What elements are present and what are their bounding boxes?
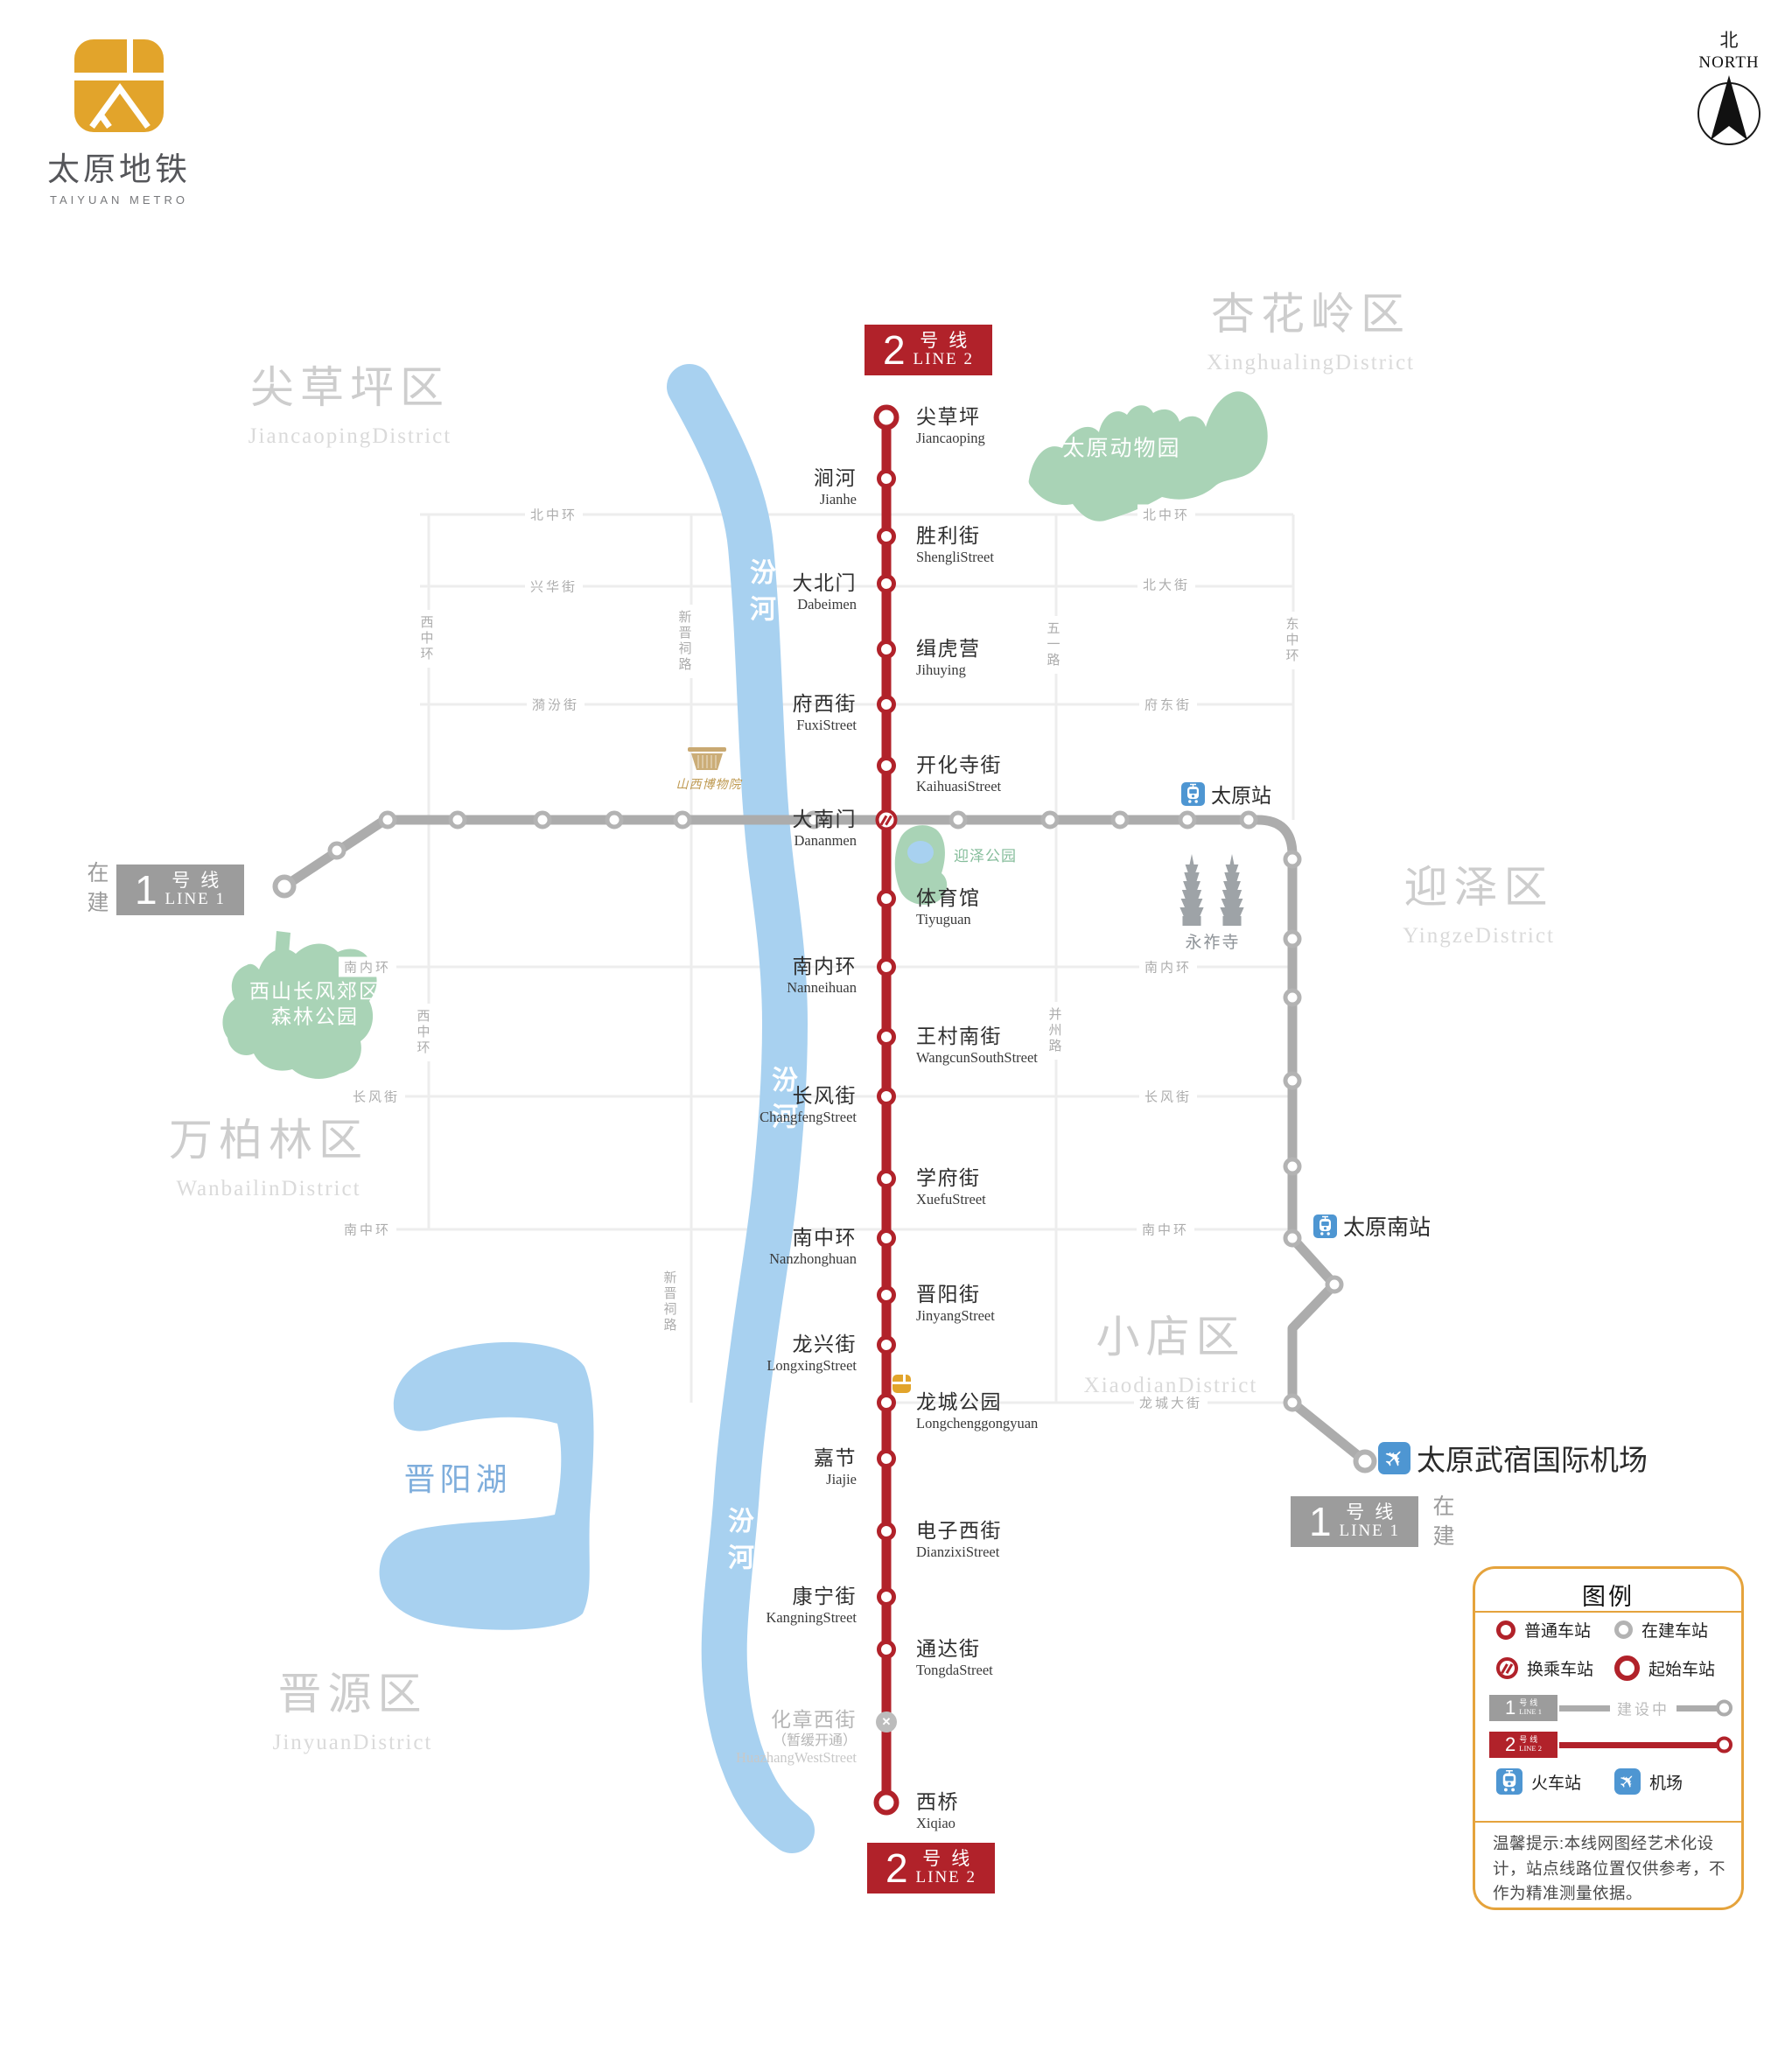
station-name-en: Nanneihuan [787,979,857,997]
station-marker-line1 [674,811,692,829]
app-logo: 太原地铁 TAIYUAN METRO [26,39,212,206]
station-marker-line1 [1284,1394,1302,1412]
station-name-zh: 尖草坪 [916,405,985,430]
station-name-zh: 嘉节 [814,1446,857,1471]
poi-label: 太原武宿国际机场 [1417,1437,1648,1479]
poi-label: 太原南站 [1343,1210,1431,1242]
district-label: 晋源区JinyuanDistrict [273,1659,433,1755]
line2-number: 2 [883,330,906,370]
station-name-en: Jianhe [814,491,857,508]
station-label: 体育馆Tiyuguan [916,886,981,927]
station-label: 龙兴街LongxingStreet [766,1333,857,1374]
north-arrow-icon [1687,75,1771,149]
station-label: 王村南街WangcunSouthStreet [916,1025,1038,1066]
station-name-en: HuazhangWestStreet [736,1749,857,1767]
station-label: 长风街ChangfengStreet [759,1084,857,1125]
line1-number: 1 [1505,1698,1515,1718]
station-marker [877,1285,896,1305]
line1-name-zh: 号线 [1346,1502,1403,1522]
station-marker-line1 [1179,811,1197,829]
terminal-station-icon [1614,1655,1640,1681]
street-label: 五一路 [1043,616,1063,674]
street-label: 南内环 [1139,957,1197,977]
line2-sample-track [1559,1742,1727,1748]
station-name-en: TongdaStreet [916,1662,993,1679]
line1-name-en: LINE 1 [1340,1522,1401,1541]
station-name-zh: 缉虎营 [916,637,981,661]
line2-name-en: LINE 2 [916,1869,977,1887]
station-name-en: Dabeimen [793,596,857,613]
legend-item-terminal-station: 起始车站 [1614,1655,1732,1681]
legend-item-label: 起始车站 [1648,1656,1715,1680]
district-label: 杏花岭区XinghualingDistrict [1207,279,1415,375]
legend-item-label: 火车站 [1531,1770,1581,1794]
forest-park-label-line2: 森林公园 [271,1004,359,1027]
poi-taiyuan-station: 太原站 [1181,779,1271,808]
station-marker [877,1640,896,1659]
line1-name-zh: 号线 [171,871,229,891]
station-name-zh: 学府街 [916,1166,986,1191]
street-label: 西中环 [416,610,437,668]
museum-icon [688,747,726,770]
legend-line2-sample: 2 号线 LINE 2 [1489,1732,1727,1758]
district-name-zh: 万柏林区 [169,1105,368,1168]
station-name-zh: 胜利街 [916,524,994,549]
legend-item-label: 换乘车站 [1527,1656,1593,1680]
street-label: 新晋祠路 [675,605,695,678]
station-marker-transfer [876,809,898,831]
legend-item-under-construction-station: 在建车站 [1614,1618,1732,1641]
station-marker-line1 [449,811,467,829]
station-name-zh: 大南门 [793,808,857,832]
station-name-en: Dananmen [793,832,857,850]
transfer-station-icon [1496,1657,1518,1679]
station-name-en: DianzixiStreet [916,1543,1002,1561]
station-name-en: FuxiStreet [793,717,857,734]
station-name-zh: 化章西街 [736,1708,857,1732]
north-compass: 北 NORTH [1676,30,1781,153]
street-label: 漪汾街 [527,695,584,715]
line2-badge-bottom: 2 号线 LINE 2 [867,1843,995,1893]
street-label: 南中环 [1137,1220,1194,1240]
district-name-en: JiancaopingDistrict [248,424,451,449]
station-marker [877,527,896,546]
station-label: 化章西街（暂缓开通）HuazhangWestStreet [736,1708,857,1767]
station-marker-line1 [1284,1229,1302,1248]
under-construction-station-icon [1614,1620,1633,1639]
station-name-en: LongxingStreet [766,1357,857,1375]
station-name-en: ChangfengStreet [759,1109,857,1126]
poi-airport: ✈ 太原武宿国际机场 [1378,1437,1648,1479]
station-name-zh: 晋阳街 [916,1283,995,1307]
line2-name-en: LINE 2 [1519,1745,1542,1753]
station-name-zh: 康宁街 [766,1585,857,1609]
station-label: 府西街FuxiStreet [793,692,857,733]
station-marker-line1 [379,811,397,829]
legend-item-transfer-station: 换乘车站 [1496,1655,1614,1681]
district-name-zh: 小店区 [1084,1302,1258,1365]
line1-number: 1 [1309,1501,1332,1542]
street-label: 东中环 [1282,612,1302,669]
station-label: 尖草坪Jiancaoping [916,405,985,446]
line1-name-en: LINE 1 [165,891,227,909]
train-station-icon [1313,1214,1337,1238]
line1-mini-badge: 1 号线 LINE 1 [1489,1695,1557,1721]
station-label: 胜利街ShengliStreet [916,524,994,565]
station-label: 电子西街DianzixiStreet [916,1519,1002,1560]
line2-name-zh: 号线 [922,1849,980,1869]
station-label: 西桥Xiqiao [916,1790,959,1831]
street-label: 府东街 [1139,695,1197,715]
district-name-en: WanbailinDistrict [169,1177,368,1201]
station-name-zh: 电子西街 [916,1519,1002,1543]
station-marker-line1 [1111,811,1130,829]
poi-taiyuan-south-station: 太原南站 [1313,1210,1431,1242]
station-marker [877,1393,896,1412]
station-name-zh: 通达街 [916,1637,993,1662]
street-label: 南中环 [339,1220,396,1240]
train-station-icon [1496,1768,1522,1795]
station-marker-line1 [949,811,968,829]
poi-temple-label: 永祚寺 [1185,929,1240,953]
street-label: 北中环 [525,505,583,525]
line1-sample-track: 建设中 [1559,1705,1727,1711]
legend-title: 图例 [1475,1578,1741,1612]
station-name-zh: 涧河 [814,466,857,491]
station-name-en: XuefuStreet [916,1191,986,1208]
station-name-zh: 南内环 [787,955,857,979]
legend-note: 温馨提示:本线网图经艺术化设计，站点线路位置仅供参考，不作为精准测量依据。 [1493,1831,1729,1907]
station-name-zh: 南中环 [769,1226,857,1250]
poi-museum-label: 山西博物院 [676,775,742,793]
station-marker-line1 [1041,811,1060,829]
station-marker-line1 [1284,930,1302,948]
district-label: 尖草坪区JiancaopingDistrict [248,353,451,449]
station-name-en: Tiyuguan [916,911,981,928]
metro-logo-icon [892,1375,911,1393]
station-name-zh: 府西街 [793,692,857,717]
district-name-zh: 杏花岭区 [1207,279,1415,342]
zoo-label: 太原动物园 [1062,435,1180,462]
train-station-icon [1181,782,1205,806]
forest-park-label: 西山长风郊区 森林公园 [249,978,381,1029]
district-name-zh: 尖草坪区 [248,353,451,416]
line2-name-en: LINE 2 [913,351,975,369]
street-label: 新晋祠路 [660,1265,680,1339]
station-name-en: Jihuying [916,661,981,679]
normal-station-icon [1496,1620,1515,1640]
station-name-en: Xiqiao [916,1815,959,1832]
street-label: 北大街 [1137,575,1195,595]
legend-divider-bottom [1475,1821,1741,1823]
station-name-zh: 西桥 [916,1790,959,1815]
station-marker [877,469,896,488]
station-label: 大北门Dabeimen [793,571,857,612]
station-marker [877,1087,896,1106]
station-marker-line1 [605,811,624,829]
station-marker [877,1449,896,1468]
street-label: 长风街 [347,1087,405,1107]
station-label: 涧河Jianhe [814,466,857,507]
station-label: 龙城公园Longchenggongyuan [916,1390,1038,1431]
station-marker [877,640,896,659]
legend-item-train-station: 火车站 [1496,1768,1614,1795]
station-marker-line1 [1284,850,1302,869]
station-marker [877,1335,896,1354]
station-label: 晋阳街JinyangStreet [916,1283,995,1324]
station-marker [877,1522,896,1541]
street-label: 南内环 [339,957,396,977]
station-label: 开化寺街KaihuasiStreet [916,753,1002,794]
yingze-park-label: 迎泽公园 [954,843,1017,865]
street-label: 长风街 [1139,1087,1197,1107]
district-name-en: JinyuanDistrict [273,1731,433,1755]
airport-icon: ✈ [1614,1768,1641,1795]
station-marker-line1 [534,811,552,829]
station-marker [877,1169,896,1188]
line1-badge-bottom: 1 号线 LINE 1 [1291,1496,1418,1547]
district-name-en: XinghualingDistrict [1207,351,1415,375]
station-label: 缉虎营Jihuying [916,637,981,678]
line1-construction-note: 建设中 [1610,1697,1676,1719]
legend-item-normal-station: 普通车站 [1496,1618,1614,1641]
line2-badge-top: 2 号线 LINE 2 [864,325,992,375]
line1-number: 1 [135,870,157,910]
station-marker-line1 [1284,1158,1302,1176]
logo-title-en: TAIYUAN METRO [26,193,212,206]
station-marker [877,889,896,908]
station-marker-line1 [328,842,346,860]
station-name-en: KangningStreet [766,1609,857,1627]
legend-line1-sample: 1 号线 LINE 1 建设中 [1489,1695,1727,1721]
station-marker-terminal [874,405,899,430]
line2-terminal-icon [1716,1737,1732,1753]
line2-number: 2 [885,1848,908,1888]
compass-label-en: NORTH [1676,52,1781,73]
station-name-zh: 体育馆 [916,886,981,911]
legend-item-label: 普通车站 [1524,1618,1591,1641]
station-label: 学府街XuefuStreet [916,1166,986,1207]
station-name-zh: 王村南街 [916,1025,1038,1049]
pagoda-icons [1179,854,1243,926]
station-label: 通达街TongdaStreet [916,1637,993,1678]
station-name-zh: 开化寺街 [916,753,1002,778]
yingze-park-pond [907,841,934,864]
street-label: 并州路 [1045,1002,1065,1060]
taiyuan-metro-logo-icon [74,39,164,132]
station-marker [877,756,896,775]
compass-label-zh: 北 [1676,30,1781,52]
station-label: 南内环Nanneihuan [787,955,857,996]
station-name-zh: 大北门 [793,571,857,596]
airport-icon: ✈ [1378,1442,1410,1474]
station-label: 康宁街KangningStreet [766,1585,857,1626]
legend-item-label: 机场 [1649,1770,1683,1794]
station-marker-line1 [1284,989,1302,1007]
station-marker [877,1228,896,1248]
line2-name-zh: 号线 [920,331,977,351]
station-name-en: Jiajie [814,1471,857,1488]
station-name-en: ShengliStreet [916,549,994,566]
station-status-note: （暂缓开通） [736,1732,857,1749]
street-label: 兴华街 [525,577,583,597]
station-marker-suspended: ✕ [876,1711,897,1732]
station-name-zh: 龙兴街 [766,1333,857,1357]
station-marker [877,1587,896,1606]
legend-divider-top [1475,1611,1741,1613]
line1-badge-left: 1 号线 LINE 1 [116,864,244,915]
line1-status-bottom: 在建 [1426,1494,1458,1554]
legend-box: 图例 普通车站 在建车站 换乘车站 起始车站 1 号线 [1473,1566,1744,1910]
district-name-zh: 迎泽区 [1403,852,1555,915]
line2-number: 2 [1505,1735,1515,1754]
station-name-zh: 长风街 [759,1084,857,1109]
street-label: 西中环 [413,1004,433,1061]
district-name-zh: 晋源区 [273,1659,433,1722]
legend-item-airport: ✈ 机场 [1614,1768,1732,1795]
forest-park-label-line1: 西山长风郊区 [249,979,381,1002]
taiyuan-metro-map: 太原地铁 TAIYUAN METRO 北 NORTH 2 号线 LINE 2 2… [0,0,1792,2051]
river-name-label: 汾河 [718,1507,757,1580]
station-name-en: Longchenggongyuan [916,1415,1038,1432]
line1-status-left: 在建 [80,861,112,920]
station-marker [877,957,896,976]
station-name-en: WangcunSouthStreet [916,1049,1038,1067]
legend-items: 普通车站 在建车站 换乘车站 起始车站 [1496,1618,1732,1681]
lake-label: 晋阳湖 [403,1454,511,1500]
station-marker [877,574,896,593]
district-name-en: YingzeDistrict [1403,924,1555,948]
station-label: 嘉节Jiajie [814,1446,857,1487]
station-marker-line1-terminal [1354,1450,1377,1473]
station-marker-terminal [874,1790,899,1816]
station-marker-line1 [1326,1276,1344,1294]
poi-label: 太原站 [1211,779,1271,808]
station-name-en: KaihuasiStreet [916,778,1002,795]
line1-terminal-icon [1716,1700,1732,1717]
logo-title-zh: 太原地铁 [26,143,212,190]
station-name-zh: 龙城公园 [916,1390,1038,1415]
station-marker-line1 [1284,1072,1302,1090]
legend-item-label: 在建车站 [1641,1618,1708,1641]
station-name-en: Nanzhonghuan [769,1250,857,1268]
station-marker-line1 [1240,811,1258,829]
district-label: 迎泽区YingzeDistrict [1403,852,1555,948]
station-label: 南中环Nanzhonghuan [769,1226,857,1267]
river-name-label: 汾河 [740,558,779,632]
line2-mini-badge: 2 号线 LINE 2 [1489,1732,1557,1758]
street-label: 龙城大街 [1134,1393,1207,1413]
district-label: 万柏林区WanbailinDistrict [169,1105,368,1201]
station-label: 大南门Dananmen [793,808,857,849]
line1-name-en: LINE 1 [1519,1708,1542,1716]
station-marker [877,695,896,714]
station-name-en: Jiancaoping [916,430,985,447]
legend-facilities: 火车站 ✈ 机场 [1496,1768,1732,1795]
station-marker [877,1027,896,1046]
street-label: 北中环 [1137,505,1195,525]
station-name-en: JinyangStreet [916,1307,995,1325]
station-marker-line1-terminal [273,875,297,899]
district-label: 小店区XiaodianDistrict [1084,1302,1258,1398]
